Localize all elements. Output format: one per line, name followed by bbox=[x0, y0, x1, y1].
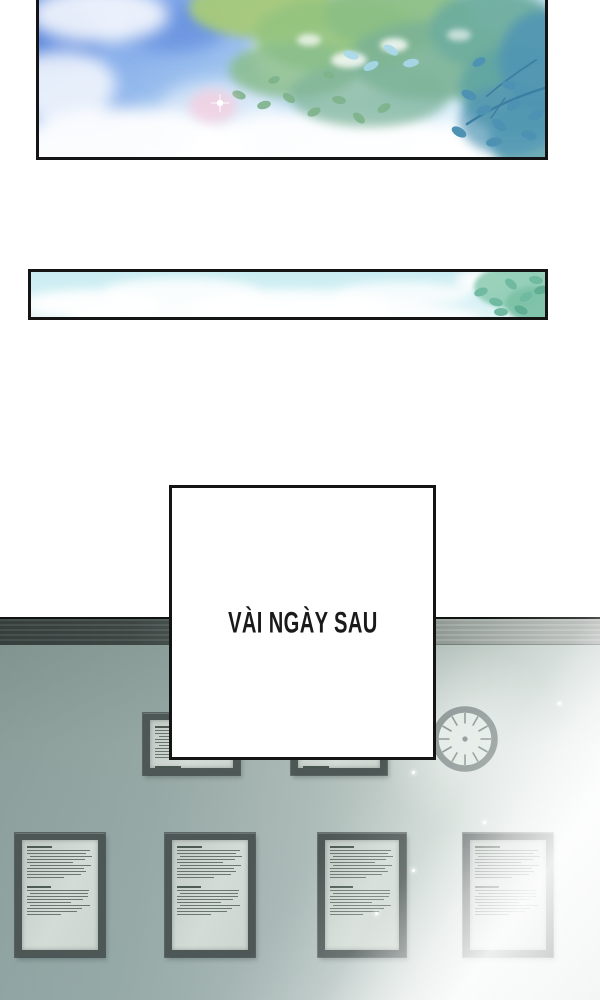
panel-sky-foliage bbox=[36, 0, 548, 160]
dust-speck bbox=[558, 702, 561, 705]
dust-speck bbox=[483, 821, 486, 824]
document-paper bbox=[22, 840, 98, 950]
webtoon-page: VÀI NGÀY SAU bbox=[0, 0, 600, 1000]
sky-foliage-art bbox=[39, 0, 545, 157]
framed-document bbox=[15, 833, 105, 957]
framed-document bbox=[165, 833, 255, 957]
clock-center-dot bbox=[462, 736, 467, 741]
dust-speck bbox=[412, 869, 415, 872]
caption-text: VÀI NGÀY SAU bbox=[228, 606, 378, 640]
pink-flare bbox=[189, 89, 237, 123]
framed-document bbox=[318, 833, 406, 957]
framed-document bbox=[463, 833, 553, 957]
strip-clouds bbox=[31, 272, 516, 317]
document-paper bbox=[325, 840, 399, 950]
document-paper bbox=[470, 840, 546, 950]
panel-sky-strip bbox=[28, 269, 548, 320]
document-paper bbox=[172, 840, 248, 950]
wall-clock bbox=[429, 703, 501, 775]
sky-strip-art bbox=[31, 272, 545, 317]
dust-speck bbox=[375, 912, 378, 915]
caption-box: VÀI NGÀY SAU bbox=[169, 485, 436, 760]
dust-speck bbox=[412, 771, 415, 774]
